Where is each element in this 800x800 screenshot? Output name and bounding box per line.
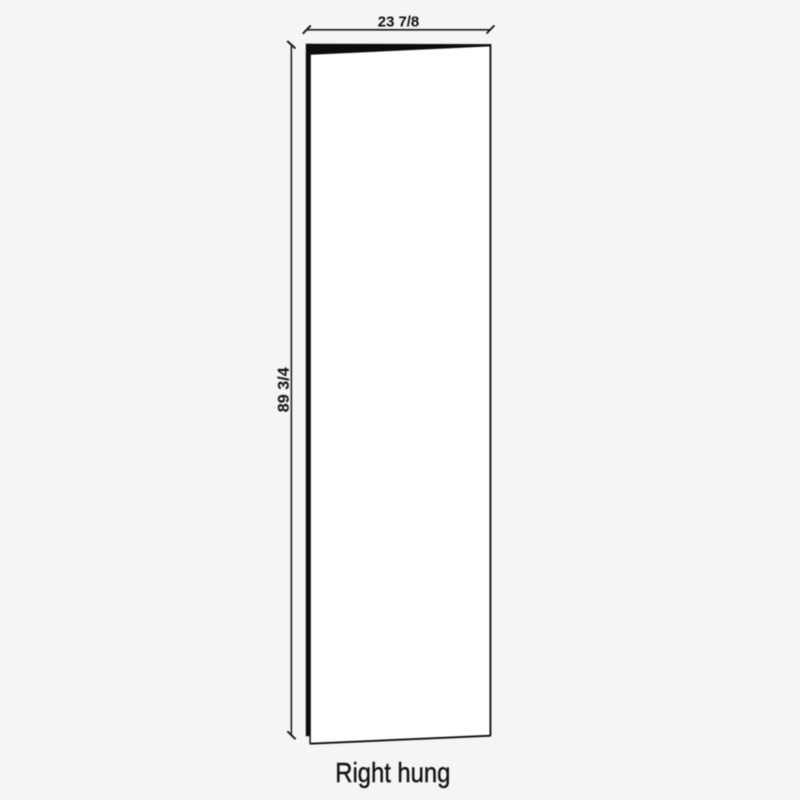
svg-text:89 3/4: 89 3/4 (276, 367, 293, 412)
svg-text:Right hung: Right hung (335, 757, 450, 788)
svg-text:23 7/8: 23 7/8 (378, 15, 419, 31)
